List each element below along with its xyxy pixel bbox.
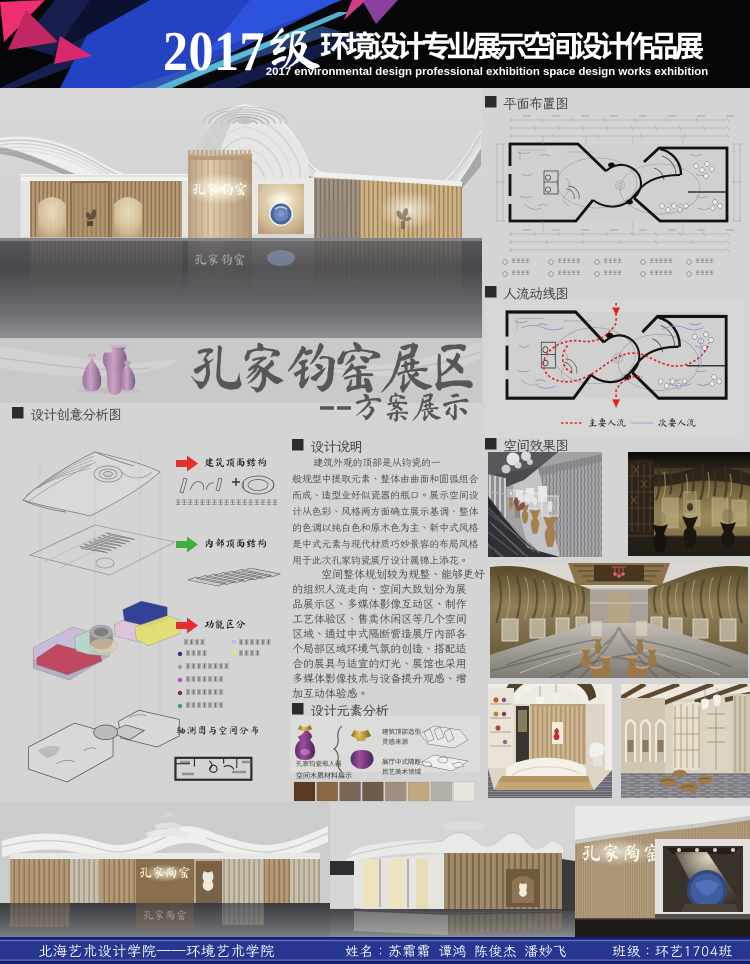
- svg-text:2017: 2017: [163, 21, 265, 82]
- svg-text:2017 environmental design prof: 2017 environmental design professional e…: [266, 66, 708, 78]
